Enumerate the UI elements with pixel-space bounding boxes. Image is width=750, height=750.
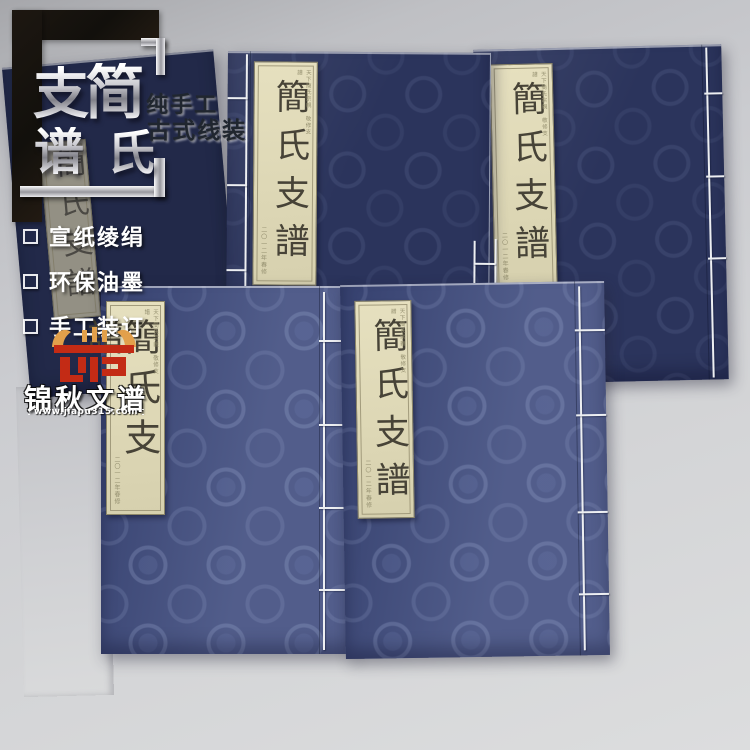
binding-thread	[576, 414, 606, 416]
slip-note-bottom: 二〇一二年春修	[499, 232, 509, 281]
slip-note-top: 天下簡氏宗親 敬修支譜	[388, 308, 407, 374]
title-slip: 簡氏支譜 天下簡氏宗親 敬修支譜 二〇一二年春修	[490, 63, 558, 291]
silver-bracket	[141, 38, 165, 46]
decorative-frame-top	[12, 10, 159, 40]
book-bottom-left: 簡氏支譜 天下簡氏宗親 敬修支譜 二〇一二年春修	[101, 286, 351, 654]
binding-thread	[226, 269, 246, 271]
binding-thread	[228, 97, 248, 99]
corner-thread	[474, 263, 496, 265]
book-bottom-right: 簡氏支譜 天下簡氏宗親 敬修支譜 二〇一二年春修	[340, 281, 610, 659]
slip-note-top: 天下簡氏宗親 敬修支譜	[141, 309, 159, 375]
slip-note-bottom: 二〇一二年春修	[363, 460, 373, 509]
binding-thread	[575, 329, 605, 331]
binding-thread	[578, 511, 608, 513]
title-slip: 簡氏支譜 天下簡氏宗親 敬修支譜 二〇一二年春修	[252, 61, 318, 285]
binding-thread	[708, 257, 726, 259]
title-slip: 簡氏支譜	[39, 139, 101, 320]
title-slip: 簡氏支譜 天下簡氏宗親 敬修支譜 二〇一二年春修	[354, 300, 414, 519]
slip-note-bottom: 二〇一二年春修	[258, 226, 267, 275]
slip-note-top: 天下簡氏宗親 敬修支譜	[294, 70, 312, 136]
binding-thread	[706, 175, 724, 177]
binding-thread	[323, 292, 325, 650]
book-title: 簡氏支譜	[45, 146, 95, 309]
slip-note-bottom: 二〇一二年春修	[112, 456, 121, 505]
binding-thread	[704, 92, 722, 94]
binding-thread	[579, 593, 609, 595]
binding-thread	[227, 184, 247, 186]
product-photo: 簡氏支譜 簡氏支譜 天下簡氏宗親 敬修支譜 二〇一二年春修 簡氏支譜 天下簡氏宗…	[0, 0, 750, 750]
paper-backdrop	[16, 385, 114, 697]
slip-note-top: 天下簡氏宗親 敬修支譜	[529, 71, 548, 137]
title-slip: 簡氏支譜 天下簡氏宗親 敬修支譜 二〇一二年春修	[106, 301, 165, 515]
